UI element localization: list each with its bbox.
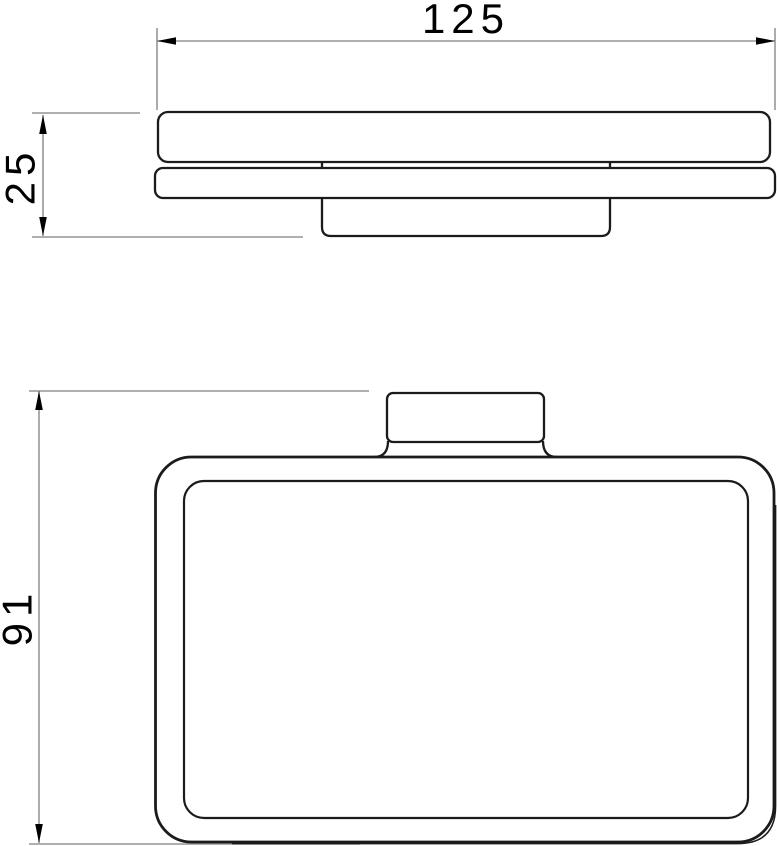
front-view-object xyxy=(156,393,776,844)
height-arrow-down-icon xyxy=(35,824,43,843)
dish-inner-rim xyxy=(184,481,748,818)
top-plate xyxy=(158,112,770,162)
height-dimension-label: 91 xyxy=(0,588,41,647)
thickness-arrow-up-icon xyxy=(39,115,47,134)
mounting-post-right-fillet xyxy=(543,441,557,457)
width-arrow-right-icon xyxy=(756,37,775,45)
mounting-post xyxy=(387,393,544,442)
bottom-plate xyxy=(155,168,775,198)
width-dimension-label: 125 xyxy=(422,0,510,42)
width-arrow-left-icon xyxy=(157,37,176,45)
top-view-object xyxy=(155,112,775,236)
drawing-page: 125 25 91 xyxy=(0,0,777,846)
thickness-arrow-down-icon xyxy=(39,217,47,236)
technical-drawing-canvas: 125 25 91 xyxy=(0,0,777,846)
height-arrow-up-icon xyxy=(35,391,43,410)
thickness-dimension-label: 25 xyxy=(0,147,44,206)
mounting-post-left-fillet xyxy=(374,441,388,457)
